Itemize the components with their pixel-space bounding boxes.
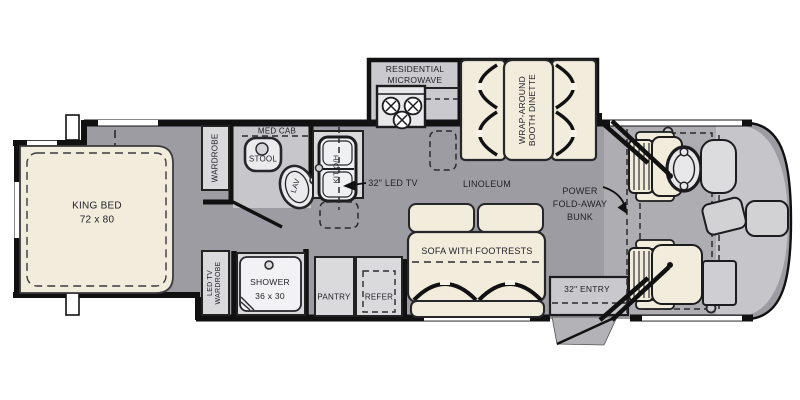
sofa-body (408, 232, 545, 302)
entry-label: 32" ENTRY (564, 285, 610, 295)
slide-seal-tab-top (66, 115, 79, 140)
dash-panel-driver (701, 140, 736, 193)
driver-belt-buckle (667, 173, 673, 179)
bunk-label-line1: POWER (562, 186, 597, 196)
microwave-label-line2: MICROWAVE (388, 76, 443, 86)
entry-door (550, 277, 628, 315)
passenger-seat (629, 240, 702, 309)
toilet-flush (256, 143, 268, 155)
pantry-cabinet (315, 257, 354, 316)
led-tv-wardrobe-line2: WARDROBE (215, 262, 223, 305)
led-tv-wardrobe-label: LED TV WARDROBE (207, 262, 223, 305)
steering-wheel (667, 147, 701, 191)
pantry-label: PANTRY (317, 292, 350, 301)
refer-label: REFER (365, 292, 393, 301)
sofa-label: SOFA WITH FOOTRESTS (421, 246, 532, 256)
dinette-label-line2: BOOTH DINETTE (528, 74, 538, 146)
passenger-console (703, 261, 736, 305)
led-tv-wardrobe-line1: LED TV (207, 262, 215, 305)
dash-front-panel (746, 201, 788, 236)
shower-drain (265, 261, 273, 269)
led-tv-label: 32" LED TV (368, 178, 418, 188)
slide-seal-tab-bottom (66, 293, 79, 315)
sink-faucet (315, 164, 322, 171)
shower-size-label: 36 x 30 (255, 292, 285, 302)
linoleum-label: LINOLEUM (463, 179, 511, 189)
dinette-label: WRAP-AROUND BOOTH DINETTE (518, 74, 538, 146)
microwave-label-line1: RESIDENTIAL (386, 65, 445, 75)
shower-label: SHOWER (250, 278, 290, 288)
med-cab-label: MED CAB (258, 126, 296, 135)
sofa-pillow-right (478, 204, 543, 232)
passenger-belt-buckle (667, 262, 673, 268)
stool-label: STOOL (249, 154, 277, 163)
king-bed-label: KING BED (72, 200, 122, 212)
sofa-pillow-left (409, 204, 474, 232)
bunk-label-line2: FOLD-AWAY (553, 199, 607, 209)
floorplan-canvas: KING BED 72 x 80 WARDROBE MED CAB STOOL … (0, 0, 800, 400)
sofa-base (411, 301, 544, 317)
kit-oh-label: KIT O/H (333, 155, 342, 184)
bunk-label-line3: BUNK (567, 212, 593, 222)
wardrobe-label: WARDROBE (210, 134, 219, 183)
dinette-bench-right (552, 60, 596, 160)
king-bed-size-label: 72 x 80 (80, 214, 115, 226)
